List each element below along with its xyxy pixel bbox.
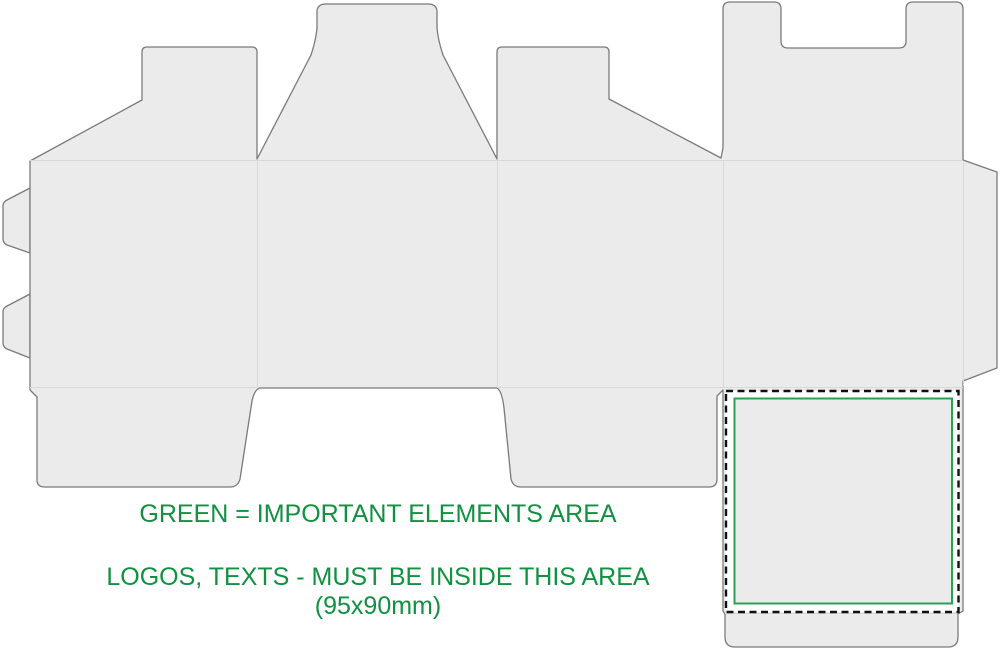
note-line-3: (95x90mm) — [0, 592, 756, 621]
instruction-note: GREEN = IMPORTANT ELEMENTS AREA LOGOS, T… — [0, 500, 756, 621]
dieline-template-canvas: GREEN = IMPORTANT ELEMENTS AREA LOGOS, T… — [0, 0, 1000, 651]
important-elements-area — [735, 399, 953, 604]
left-glue-tab-lower — [3, 294, 30, 358]
left-glue-tab-upper — [3, 188, 30, 253]
note-line-2: LOGOS, TEXTS - MUST BE INSIDE THIS AREA — [0, 563, 756, 592]
note-line-1: GREEN = IMPORTANT ELEMENTS AREA — [0, 500, 756, 529]
